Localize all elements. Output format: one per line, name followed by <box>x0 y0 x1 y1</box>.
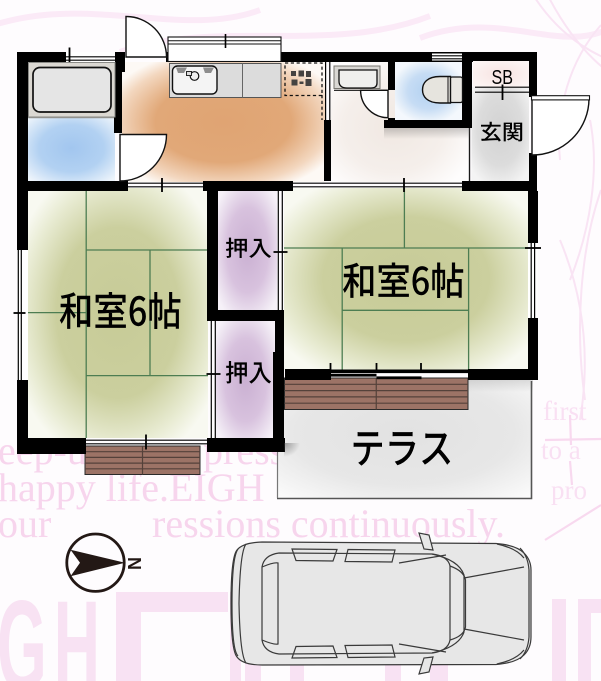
svg-text:SB: SB <box>492 67 514 89</box>
svg-text:first: first <box>543 396 587 426</box>
svg-text:pro: pro <box>551 475 587 505</box>
svg-text:ressions continuously.: ressions continuously. <box>152 501 505 546</box>
svg-text:N: N <box>124 557 144 570</box>
svg-text:our: our <box>0 501 51 546</box>
